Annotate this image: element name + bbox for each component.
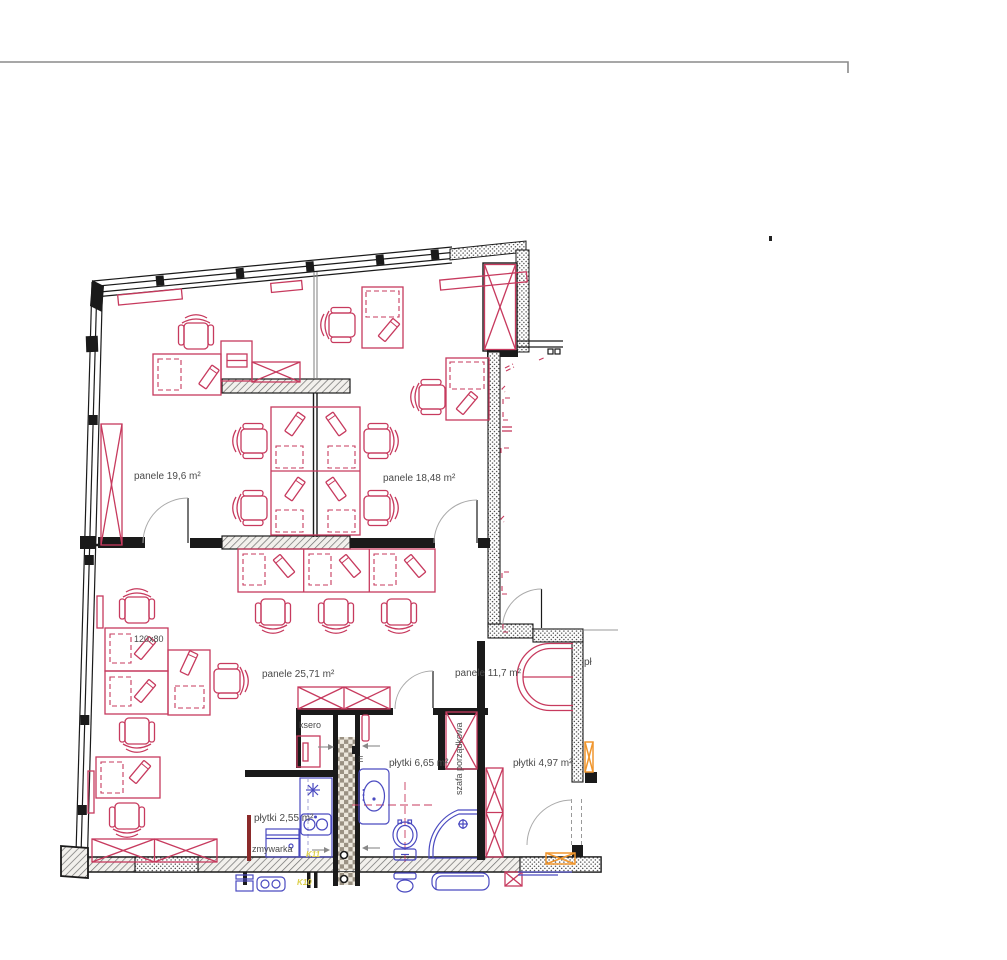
chair: [364, 491, 398, 526]
washbasin: [359, 769, 389, 824]
chair: [120, 718, 155, 752]
chair: [120, 589, 155, 623]
door-arc-bathroom: [395, 671, 433, 709]
desk: [96, 757, 160, 798]
toilet: [393, 820, 417, 860]
label-cleaning-closet: szafa porządkowa: [454, 722, 464, 795]
wall-middle: [84, 536, 490, 549]
desk: [362, 287, 403, 348]
radiator: [362, 715, 369, 741]
wardrobe-tall: [101, 424, 122, 545]
stray-dot: [769, 236, 772, 241]
radiator: [118, 289, 183, 305]
chair: [411, 380, 445, 415]
shower: [429, 810, 477, 858]
radiator: [271, 280, 303, 292]
label-kitchenette: płytki 2,55 m²: [254, 813, 314, 824]
chair: [256, 599, 291, 633]
chair: [233, 424, 267, 459]
radiator: [97, 596, 103, 628]
wall-right-boundary: [488, 352, 500, 626]
door-arc-entrance: [527, 800, 572, 845]
chair: [110, 803, 145, 837]
door-arc-corridor: [503, 589, 542, 628]
label-open-office: panele 25,71 m²: [262, 669, 335, 680]
chair: [382, 599, 417, 633]
chair: [214, 664, 248, 699]
sofa: [517, 644, 573, 711]
vent-shaft: [338, 737, 355, 870]
hall-cabinet: [486, 768, 503, 857]
label-electric: E: [358, 755, 363, 764]
desk: [446, 358, 489, 420]
label-lounge: panele 11,7 m²: [455, 668, 522, 679]
label-office-left: panele 19,6 m²: [134, 471, 201, 482]
chair: [319, 599, 354, 633]
wall-lounge-top-b: [533, 629, 583, 642]
wall-lounge-top-a: [488, 624, 533, 638]
label-code-k11: K11: [306, 850, 321, 859]
curtain-wall-top: [93, 247, 452, 297]
label-entry-hall: płytki 4,97 m²: [513, 758, 573, 769]
chair: [233, 491, 267, 526]
chair: [321, 308, 355, 343]
cabinet-double: [298, 687, 390, 709]
label-office-right: panele 18,48 m²: [383, 473, 456, 484]
label-copier: ksero: [299, 720, 321, 730]
label-desk-size: 120x80: [134, 634, 164, 644]
desk-row: [238, 549, 435, 592]
curtain-wall-left: [76, 280, 104, 856]
label-clipped: pł: [584, 657, 593, 668]
door-arc-office-left: [143, 498, 188, 543]
label-code-k10: K10: [297, 878, 312, 887]
cabinet-clipped: [505, 872, 522, 886]
desk-cluster: [271, 407, 360, 535]
wall-top-right: [450, 241, 563, 357]
vent-star: [306, 783, 320, 797]
door-arc-office-right: [434, 500, 477, 543]
wall-entrance-side: [572, 642, 583, 782]
neighbour-fragments: [501, 357, 546, 632]
chair: [179, 315, 214, 349]
label-bathroom: płytki 6,65 m²: [389, 758, 449, 769]
floor-plan-canvas: panele 19,6 m² panele 18,48 m² panele 25…: [0, 0, 1007, 960]
radiator-orange: [585, 742, 593, 772]
chair: [364, 424, 398, 459]
floor-plan-drawing: panele 19,6 m² panele 18,48 m² panele 25…: [0, 0, 1007, 960]
label-dishwasher: zmywarka: [252, 844, 293, 854]
